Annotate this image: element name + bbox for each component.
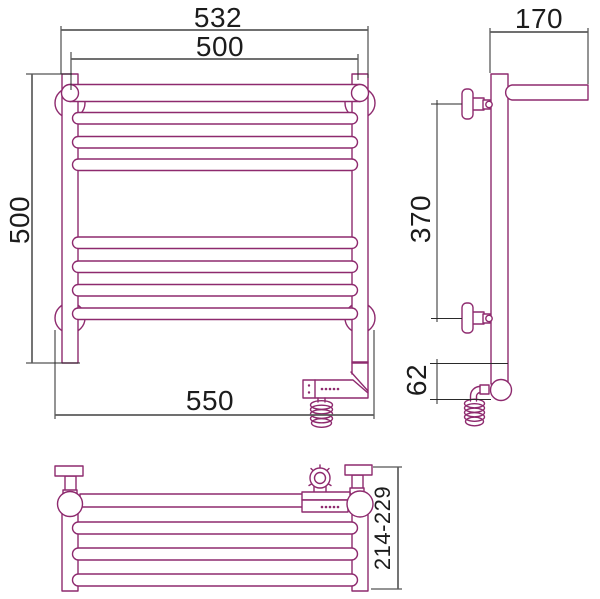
wall-bracket-side — [462, 89, 492, 119]
heater-boss — [491, 380, 512, 401]
top-view: 214-229 — [55, 465, 402, 591]
dim-label-mounting-width: 500 — [196, 31, 244, 62]
rail — [73, 285, 358, 297]
heater-plate — [302, 492, 350, 500]
air-valve — [309, 465, 331, 494]
post-top-circle — [58, 492, 83, 517]
vent-dot — [337, 388, 340, 391]
bar-end-cap — [352, 85, 369, 102]
power-cable-coil-side — [465, 399, 485, 426]
rail — [73, 159, 358, 171]
dim-label-depth: 170 — [515, 3, 563, 34]
front-view: 532 500 500 550 — [4, 2, 375, 427]
heating-unit-top — [302, 492, 350, 512]
power-cable-coil — [311, 398, 333, 427]
vent-dot — [337, 506, 340, 509]
vent-dot — [329, 506, 332, 509]
technical-drawing-canvas: 532 500 500 550 — [0, 0, 600, 599]
bracket-flange — [462, 303, 473, 333]
heating-unit — [303, 362, 368, 398]
vent-dot — [329, 388, 332, 391]
dimension-bracket-spacing: 370 — [405, 100, 462, 322]
vent-dot — [321, 388, 324, 391]
wall-bracket-top — [345, 465, 372, 494]
top-shelf-bar — [70, 85, 360, 102]
vent-dot — [321, 506, 324, 509]
dimension-depth-range: 214-229 — [370, 467, 402, 589]
rail — [73, 308, 358, 320]
rail — [73, 261, 358, 273]
rail — [73, 137, 358, 149]
vent-dot — [325, 388, 328, 391]
wall-bracket-side — [462, 303, 492, 333]
shelf-arm — [506, 85, 588, 100]
side-post — [491, 74, 508, 384]
rail — [73, 574, 358, 586]
vent-dot — [325, 506, 328, 509]
side-view: 170 370 62 — [401, 3, 588, 426]
dim-label-height: 500 — [4, 196, 35, 244]
bracket-cap — [55, 466, 83, 476]
bracket-cap — [345, 465, 372, 475]
rail — [73, 522, 358, 534]
indicator-dot — [308, 391, 310, 393]
dim-label-heater-drop: 62 — [401, 364, 432, 396]
dimension-depth: 170 — [490, 3, 588, 84]
rail — [73, 548, 358, 560]
dim-label-bottom-width: 550 — [186, 385, 234, 416]
indicator-dot — [308, 384, 310, 386]
vent-dot — [333, 506, 336, 509]
dimension-mounting-width: 500 — [71, 31, 358, 90]
bracket-flange — [462, 89, 473, 119]
towel-rail-drawing: 532 500 500 550 — [0, 0, 600, 599]
rail — [73, 113, 358, 125]
dim-label-bracket-spacing: 370 — [405, 195, 436, 243]
rail — [73, 237, 358, 249]
heater-body-top — [302, 500, 348, 512]
bar-end-cap — [62, 85, 79, 102]
vent-dot — [333, 388, 336, 391]
dim-label-overall-width: 532 — [194, 2, 242, 33]
dim-label-depth-range: 214-229 — [370, 486, 395, 570]
heating-unit-body — [303, 380, 368, 398]
